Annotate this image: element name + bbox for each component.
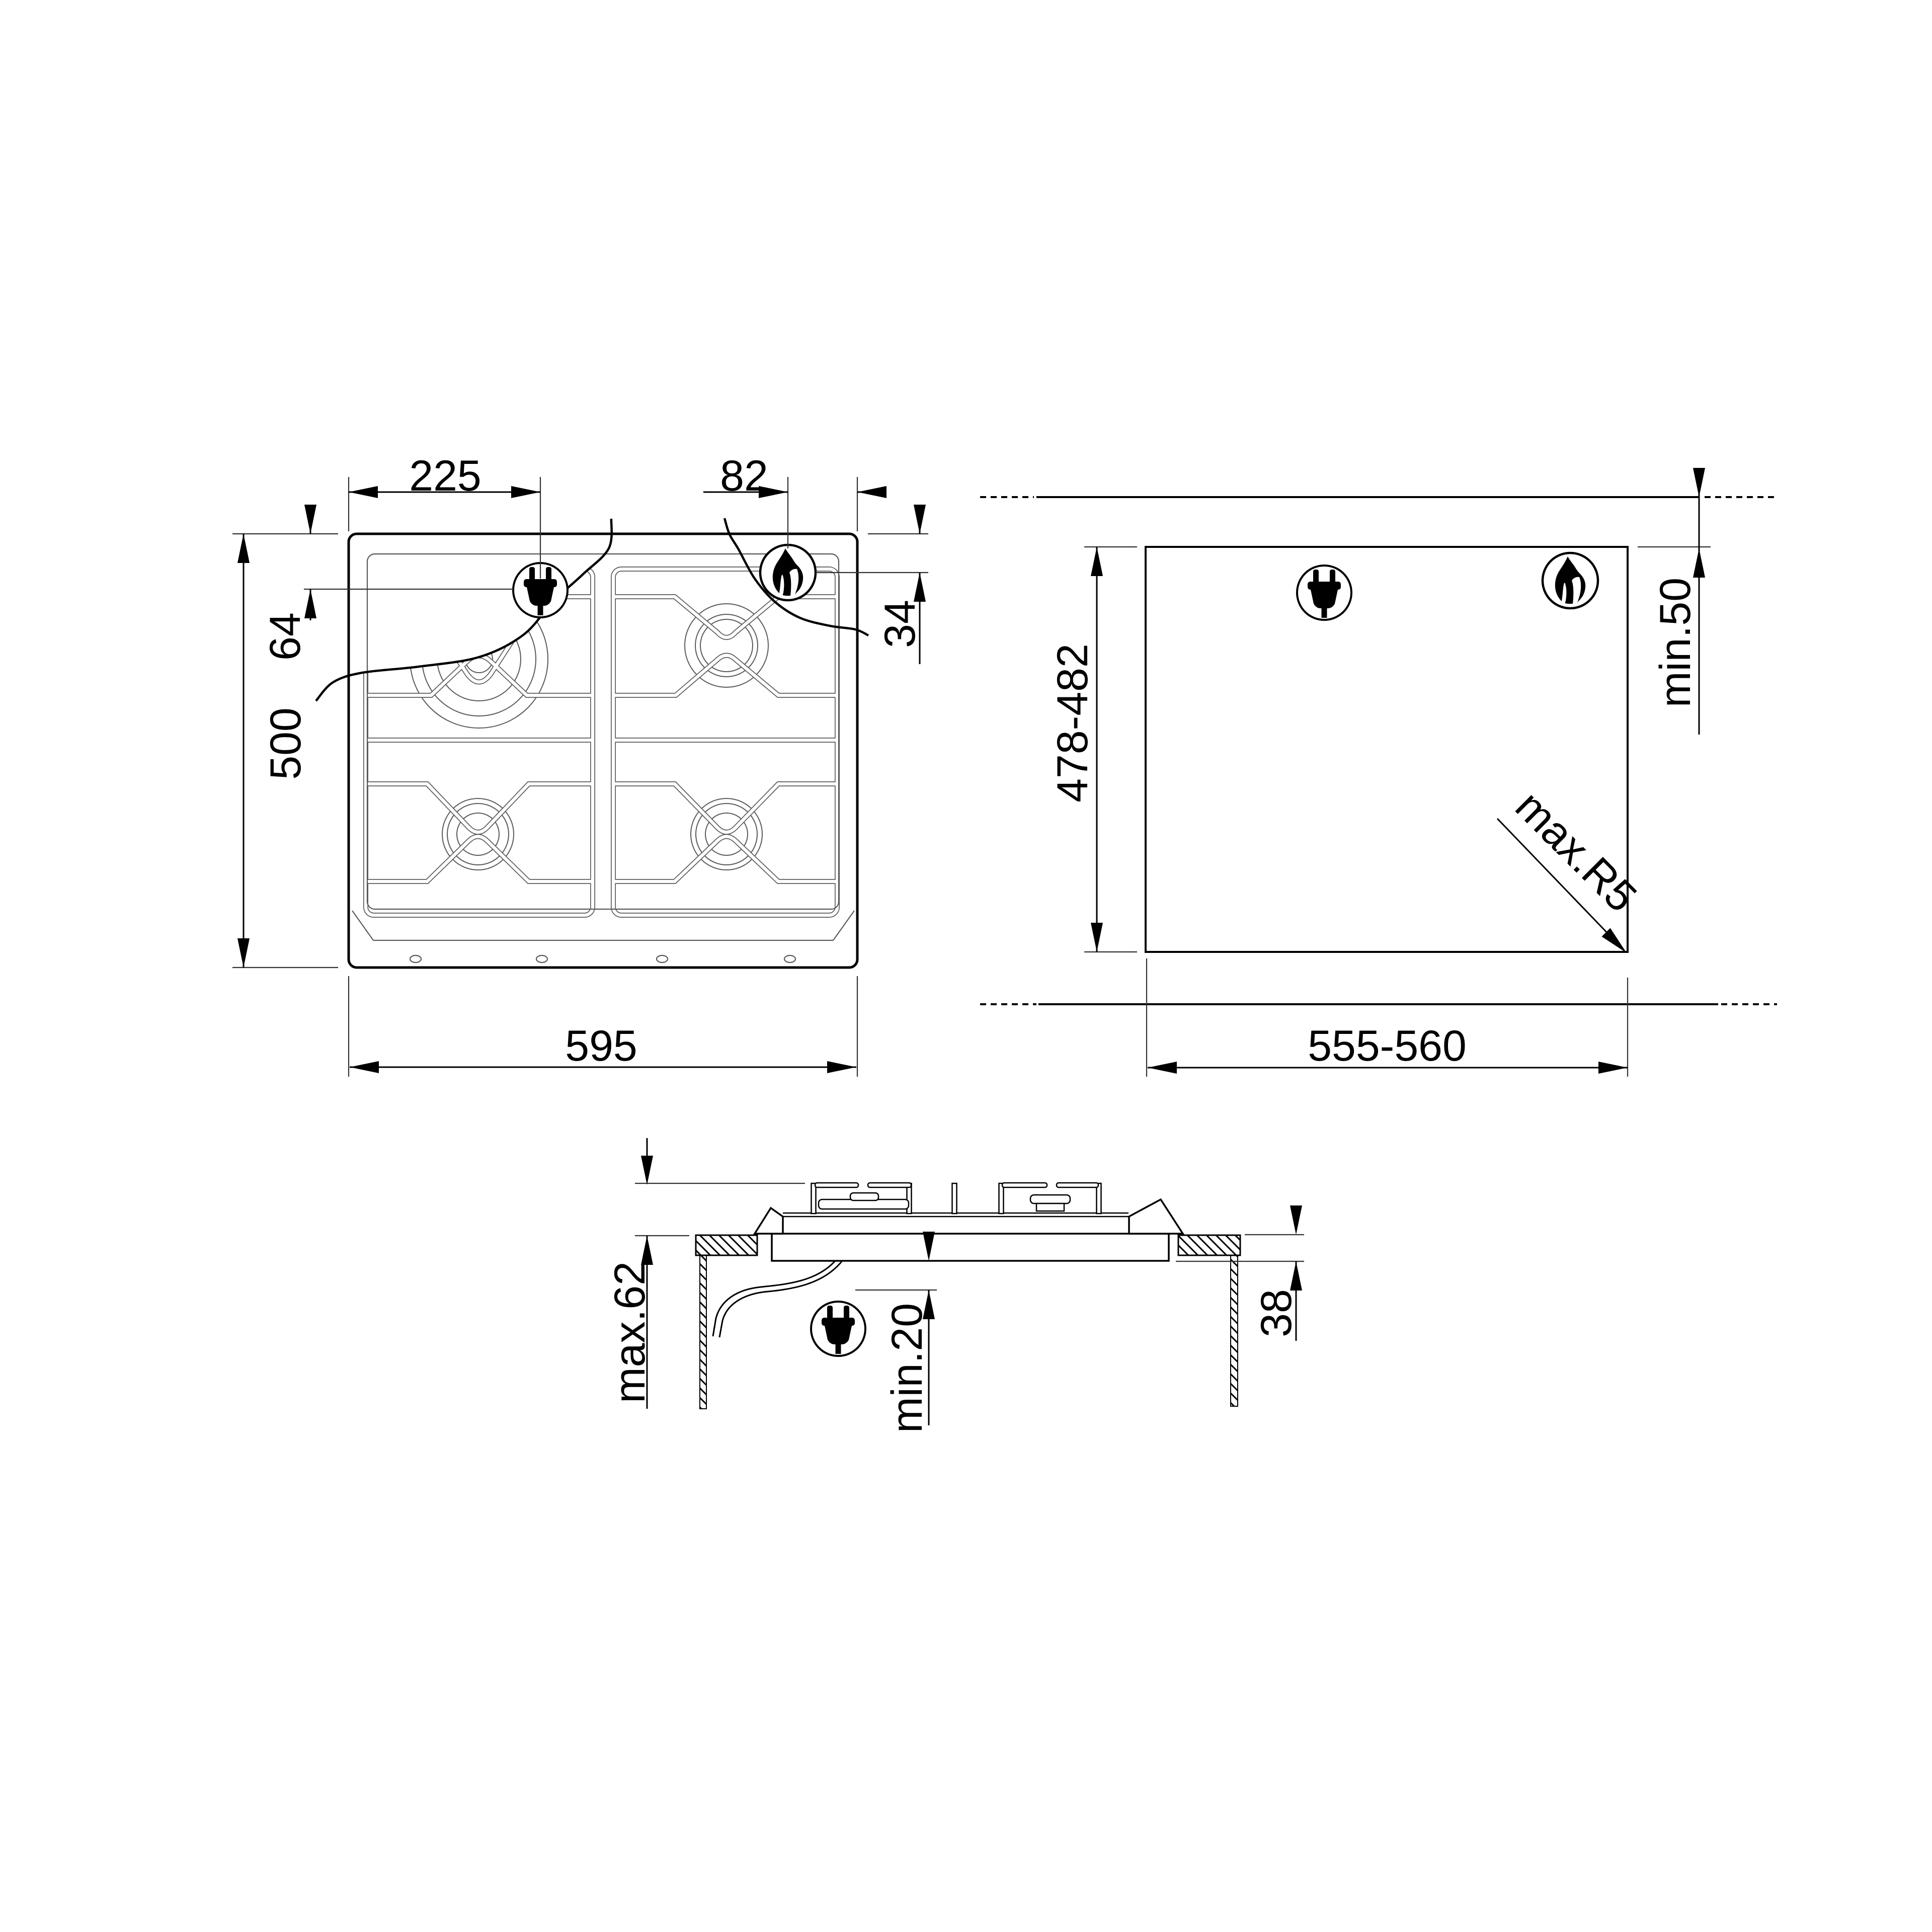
svg-text:64: 64 — [261, 612, 309, 661]
svg-text:478-482: 478-482 — [1049, 643, 1097, 802]
svg-text:82: 82 — [720, 452, 768, 500]
svg-text:38: 38 — [1252, 1289, 1301, 1337]
svg-text:595: 595 — [565, 1022, 637, 1070]
svg-text:min.20: min.20 — [883, 1303, 931, 1433]
svg-text:min.50: min.50 — [1651, 578, 1700, 707]
svg-text:225: 225 — [409, 452, 481, 500]
svg-text:max.62: max.62 — [606, 1261, 654, 1403]
svg-text:555-560: 555-560 — [1308, 1022, 1467, 1070]
svg-text:500: 500 — [262, 707, 310, 780]
svg-text:34: 34 — [876, 600, 924, 648]
